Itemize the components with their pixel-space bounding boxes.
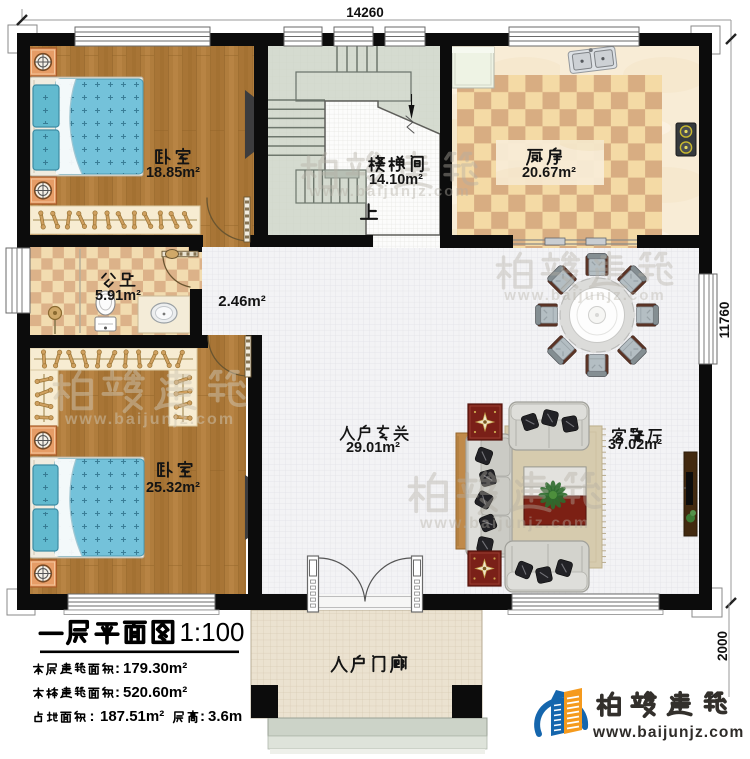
svg-text:www.baijunjz.com: www.baijunjz.com <box>419 515 590 532</box>
svg-text:187.51m²: 187.51m² <box>100 708 164 725</box>
svg-text:18.85m²: 18.85m² <box>146 165 200 181</box>
svg-text:www.baijunjz.com: www.baijunjz.com <box>64 411 235 428</box>
svg-text::: : <box>115 684 120 701</box>
svg-text:11760: 11760 <box>717 302 732 339</box>
svg-text:3.6m: 3.6m <box>208 708 242 725</box>
svg-text:14.10m²: 14.10m² <box>369 172 423 188</box>
svg-text:5.91m²: 5.91m² <box>95 288 141 304</box>
svg-text:www.baijunjz.com: www.baijunjz.com <box>592 724 744 741</box>
svg-text:1:100: 1:100 <box>179 617 244 647</box>
svg-text:20.67m²: 20.67m² <box>522 165 576 181</box>
svg-text:520.60m²: 520.60m² <box>123 684 187 701</box>
svg-text:14260: 14260 <box>346 5 384 20</box>
svg-text:www.baijunjz.com: www.baijunjz.com <box>503 287 665 304</box>
svg-text:29.01m²: 29.01m² <box>346 440 400 456</box>
svg-text:2.46m²: 2.46m² <box>218 293 266 310</box>
svg-text:37.02m²: 37.02m² <box>608 437 662 453</box>
svg-text::: : <box>115 660 120 677</box>
svg-text:2000: 2000 <box>715 631 730 661</box>
svg-text:179.30m²: 179.30m² <box>123 660 187 677</box>
svg-text:25.32m²: 25.32m² <box>146 480 200 496</box>
svg-text::: : <box>90 708 95 725</box>
svg-text::: : <box>200 708 205 725</box>
